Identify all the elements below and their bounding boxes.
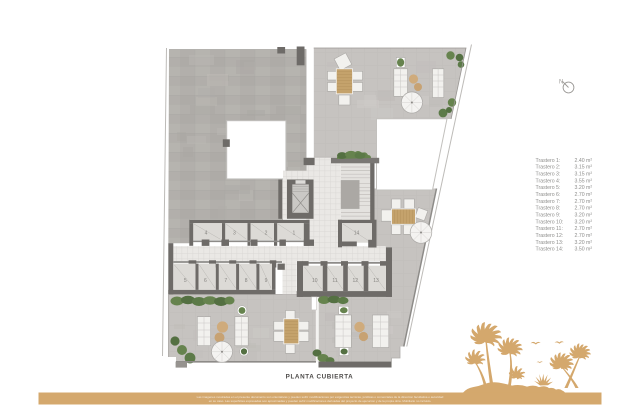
svg-text:3: 3 bbox=[233, 231, 236, 237]
svg-text:2.70 m²: 2.70 m² bbox=[575, 192, 593, 198]
svg-text:Trastero 10:: Trastero 10: bbox=[536, 219, 564, 225]
svg-text:6: 6 bbox=[204, 278, 207, 284]
svg-text:7: 7 bbox=[224, 278, 227, 284]
svg-text:Trastero 5:: Trastero 5: bbox=[536, 185, 561, 191]
svg-text:9: 9 bbox=[265, 278, 268, 284]
svg-text:5: 5 bbox=[184, 278, 187, 284]
svg-text:3.20 m²: 3.20 m² bbox=[575, 219, 593, 225]
svg-text:en su caso. Las superficies ex: en su caso. Las superficies expresadas s… bbox=[209, 399, 432, 403]
svg-text:N: N bbox=[559, 80, 563, 86]
svg-text:Trastero 6:: Trastero 6: bbox=[536, 192, 561, 198]
svg-text:3.20 m²: 3.20 m² bbox=[575, 240, 593, 246]
svg-text:3.55 m²: 3.55 m² bbox=[575, 178, 593, 184]
svg-text:13: 13 bbox=[373, 278, 379, 284]
svg-text:2.70 m²: 2.70 m² bbox=[575, 206, 593, 212]
svg-text:2.70 m²: 2.70 m² bbox=[575, 199, 593, 205]
svg-text:3.20 m²: 3.20 m² bbox=[575, 185, 593, 191]
svg-text:2.40 m²: 2.40 m² bbox=[575, 158, 593, 164]
svg-text:2.70 m²: 2.70 m² bbox=[575, 233, 593, 239]
svg-text:10: 10 bbox=[312, 278, 318, 284]
svg-text:Trastero 9:: Trastero 9: bbox=[536, 213, 561, 219]
svg-text:3.15 m²: 3.15 m² bbox=[575, 172, 593, 178]
svg-text:2: 2 bbox=[265, 231, 268, 237]
svg-text:Trastero 1:: Trastero 1: bbox=[536, 158, 561, 164]
svg-text:Trastero 8:: Trastero 8: bbox=[536, 206, 561, 212]
svg-text:3.20 m²: 3.20 m² bbox=[575, 213, 593, 219]
svg-text:Trastero 4:: Trastero 4: bbox=[536, 178, 561, 184]
svg-text:12: 12 bbox=[353, 278, 359, 284]
svg-text:Trastero 7:: Trastero 7: bbox=[536, 199, 561, 205]
svg-text:14: 14 bbox=[354, 231, 360, 237]
svg-text:3.50 m²: 3.50 m² bbox=[575, 247, 593, 253]
svg-text:3.15 m²: 3.15 m² bbox=[575, 165, 593, 171]
svg-text:Trastero 11:: Trastero 11: bbox=[536, 226, 563, 232]
svg-text:11: 11 bbox=[332, 278, 337, 284]
svg-text:4: 4 bbox=[205, 231, 208, 237]
svg-text:8: 8 bbox=[245, 278, 248, 284]
svg-text:Trastero 2:: Trastero 2: bbox=[536, 165, 561, 171]
svg-text:PLANTA CUBIERTA: PLANTA CUBIERTA bbox=[286, 374, 354, 381]
svg-text:Trastero 12:: Trastero 12: bbox=[536, 233, 564, 239]
svg-text:2.70 m²: 2.70 m² bbox=[575, 226, 593, 232]
svg-text:Trastero 13:: Trastero 13: bbox=[536, 240, 564, 246]
svg-text:Trastero 14:: Trastero 14: bbox=[536, 247, 564, 253]
svg-text:1: 1 bbox=[293, 231, 296, 237]
svg-text:Trastero 3:: Trastero 3: bbox=[536, 172, 561, 178]
